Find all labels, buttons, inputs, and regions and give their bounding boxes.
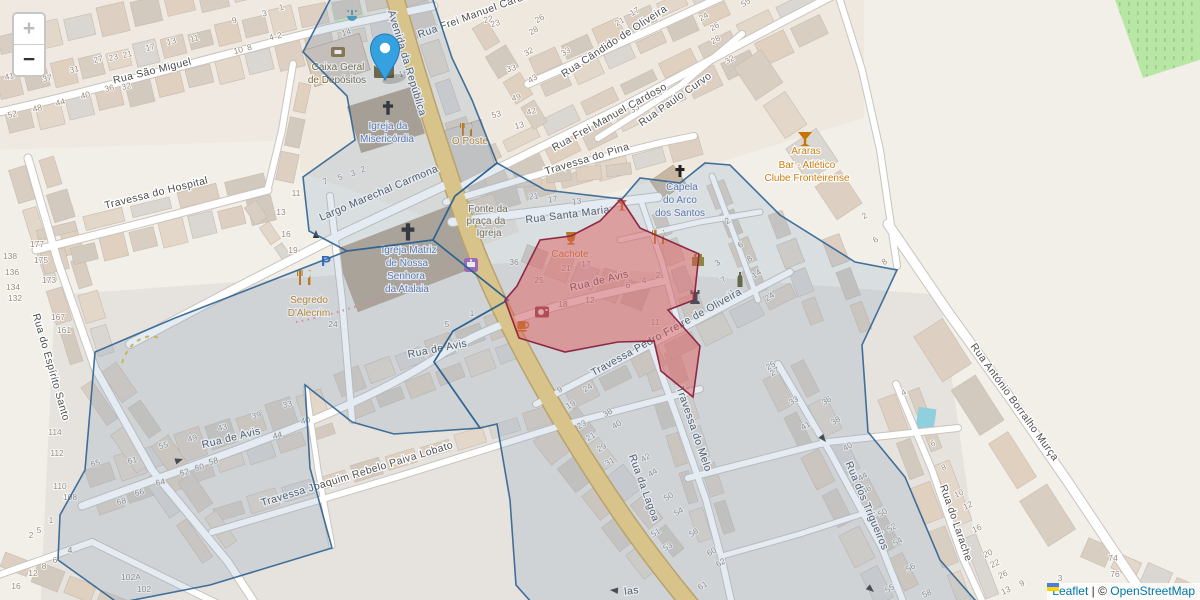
copyright-symbol: ©	[1098, 584, 1110, 598]
attribution-separator: |	[1088, 584, 1098, 598]
map-canvas[interactable]: P 41373127232117131193110842524844403632…	[0, 0, 1200, 600]
zoom-out-button[interactable]: −	[14, 45, 44, 75]
house-number: 175	[34, 255, 48, 265]
house-number: 161	[57, 325, 71, 335]
house-number: 173	[42, 275, 56, 285]
house-number: 110	[53, 481, 67, 491]
house-number: 167	[51, 312, 65, 322]
house-number: 76	[1110, 569, 1120, 579]
poi-label: Bar - Atlético	[779, 160, 836, 171]
ukraine-flag-icon	[1047, 583, 1059, 591]
house-number: 136	[5, 267, 19, 277]
map-svg: P 41373127232117131193110842524844403632…	[0, 0, 1200, 600]
house-number: 6	[53, 555, 58, 565]
house-number: 138	[3, 251, 17, 261]
osm-link[interactable]: OpenStreetMap	[1110, 584, 1195, 598]
house-number: 177	[30, 239, 44, 249]
marker-pin-dot	[380, 43, 390, 53]
house-number: 12	[28, 568, 38, 578]
house-number: 3	[1058, 573, 1063, 583]
house-number: 114	[48, 427, 62, 437]
house-number: 1	[49, 515, 54, 525]
house-number: 11	[292, 188, 301, 198]
house-number: 112	[50, 448, 64, 458]
house-number: 134	[6, 282, 20, 292]
house-number: 16	[281, 229, 291, 239]
building	[606, 163, 632, 177]
house-number: 8	[42, 561, 47, 571]
zoom-in-button[interactable]: +	[14, 14, 44, 45]
house-number: 16	[11, 581, 21, 591]
house-number: 19	[288, 245, 298, 255]
zoom-control: + −	[12, 12, 46, 77]
attribution-bar: Leaflet | © OpenStreetMap	[1047, 583, 1200, 600]
house-number: 132	[8, 293, 22, 303]
house-number: 74	[1108, 553, 1118, 563]
poi-label: Araras	[791, 146, 820, 157]
house-number: 2	[29, 530, 34, 540]
poi-label: Clube Fronteirense	[764, 173, 849, 184]
house-number: 13	[276, 207, 286, 217]
house-number: 5	[37, 525, 42, 535]
